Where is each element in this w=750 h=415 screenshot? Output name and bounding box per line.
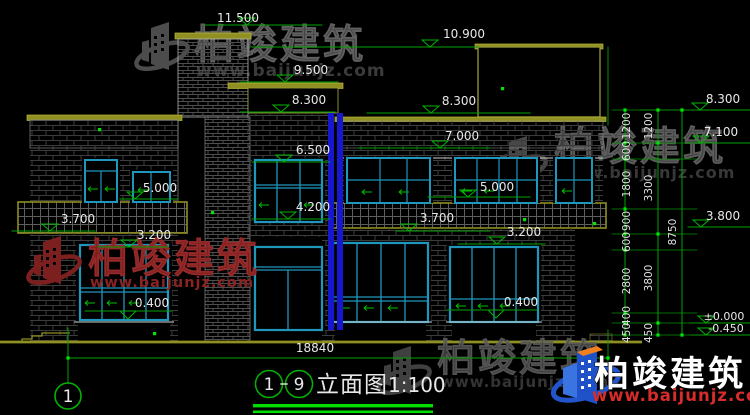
watermark-mid-left-red: 柏竣建筑 www.baijunjz.com [25, 236, 260, 291]
brand-url-text: www.baijunjz.com [592, 386, 750, 405]
elev-11500: 11.500 [217, 11, 259, 25]
elev-3700-right: 3.700 [420, 211, 454, 225]
chain-dim: 450 [643, 323, 655, 343]
axis-bubble-number: 1 [63, 387, 74, 407]
tower-parapet-cap [175, 33, 251, 39]
brand-logo-bottom-right: 柏竣建筑 www.baijunjz.com [550, 346, 750, 407]
elev-8300-right: 8.300 [442, 94, 476, 108]
chain-dim: 600 [621, 141, 633, 161]
side-elev-m0450: -0.450 [708, 322, 743, 335]
chain-dim: 900 [621, 211, 633, 231]
title-axis-start: 1 [264, 375, 275, 395]
left-parapet-cap [27, 115, 182, 121]
total-width-dim: 18840 [296, 341, 334, 355]
chain-dim: 2800 [621, 268, 633, 295]
chain-dim: 1200 [621, 113, 633, 140]
left-parapet-band [30, 120, 178, 148]
elev-10900: 10.900 [443, 27, 485, 41]
elevation-drawing: 柏竣建筑 www.baijunjz.com 柏竣建筑 www.baijunjz.… [0, 0, 750, 415]
chain-total-dim: 8750 [667, 219, 679, 246]
elev-5000-right: 5.000 [480, 180, 514, 194]
right-upper-volume [478, 47, 600, 117]
elev-4200: 4.200 [296, 200, 330, 214]
elev-8300-mid: 8.300 [292, 93, 326, 107]
elev-9500: 9.500 [294, 63, 328, 77]
side-elev-7100: 7.100 [704, 125, 738, 139]
elev-3200-right: 3.200 [507, 225, 541, 239]
title-scale: 1:100 [388, 373, 446, 397]
right-balcony-parapet [332, 203, 606, 228]
chain-dim: 1200 [643, 113, 655, 140]
title-axis-end: 9 [294, 375, 305, 395]
chain-dim: 3800 [643, 265, 655, 292]
elev-5000-left: 5.000 [143, 181, 177, 195]
chain-dim: 3300 [643, 175, 655, 202]
elev-3700-left: 3.700 [61, 212, 95, 226]
elev-3200-left: 3.200 [137, 228, 171, 242]
center-pier [205, 117, 250, 342]
chain-dim: 1800 [621, 171, 633, 198]
watermark-url-text: www.baijunjz.com [90, 275, 254, 291]
elev-0400-left: 0.400 [135, 296, 169, 310]
title-underline-2 [253, 411, 433, 414]
elev-7000: 7.000 [445, 129, 479, 143]
cad-elevation-screenshot: 柏竣建筑 www.baijunjz.com 柏竣建筑 www.baijunjz.… [0, 0, 750, 415]
side-elev-8300: 8.300 [706, 92, 740, 106]
chain-dim: 600 [621, 232, 633, 252]
title-name: 立面图 [316, 372, 388, 398]
chain-dim: 450 [621, 323, 633, 343]
elev-6500: 6.500 [296, 143, 330, 157]
blue-column-2 [337, 113, 343, 330]
elev-0400-right: 0.400 [504, 295, 538, 309]
stair-tower-wall [178, 39, 248, 117]
title-underline-1 [253, 404, 433, 407]
side-elev-3800: 3.800 [706, 209, 740, 223]
